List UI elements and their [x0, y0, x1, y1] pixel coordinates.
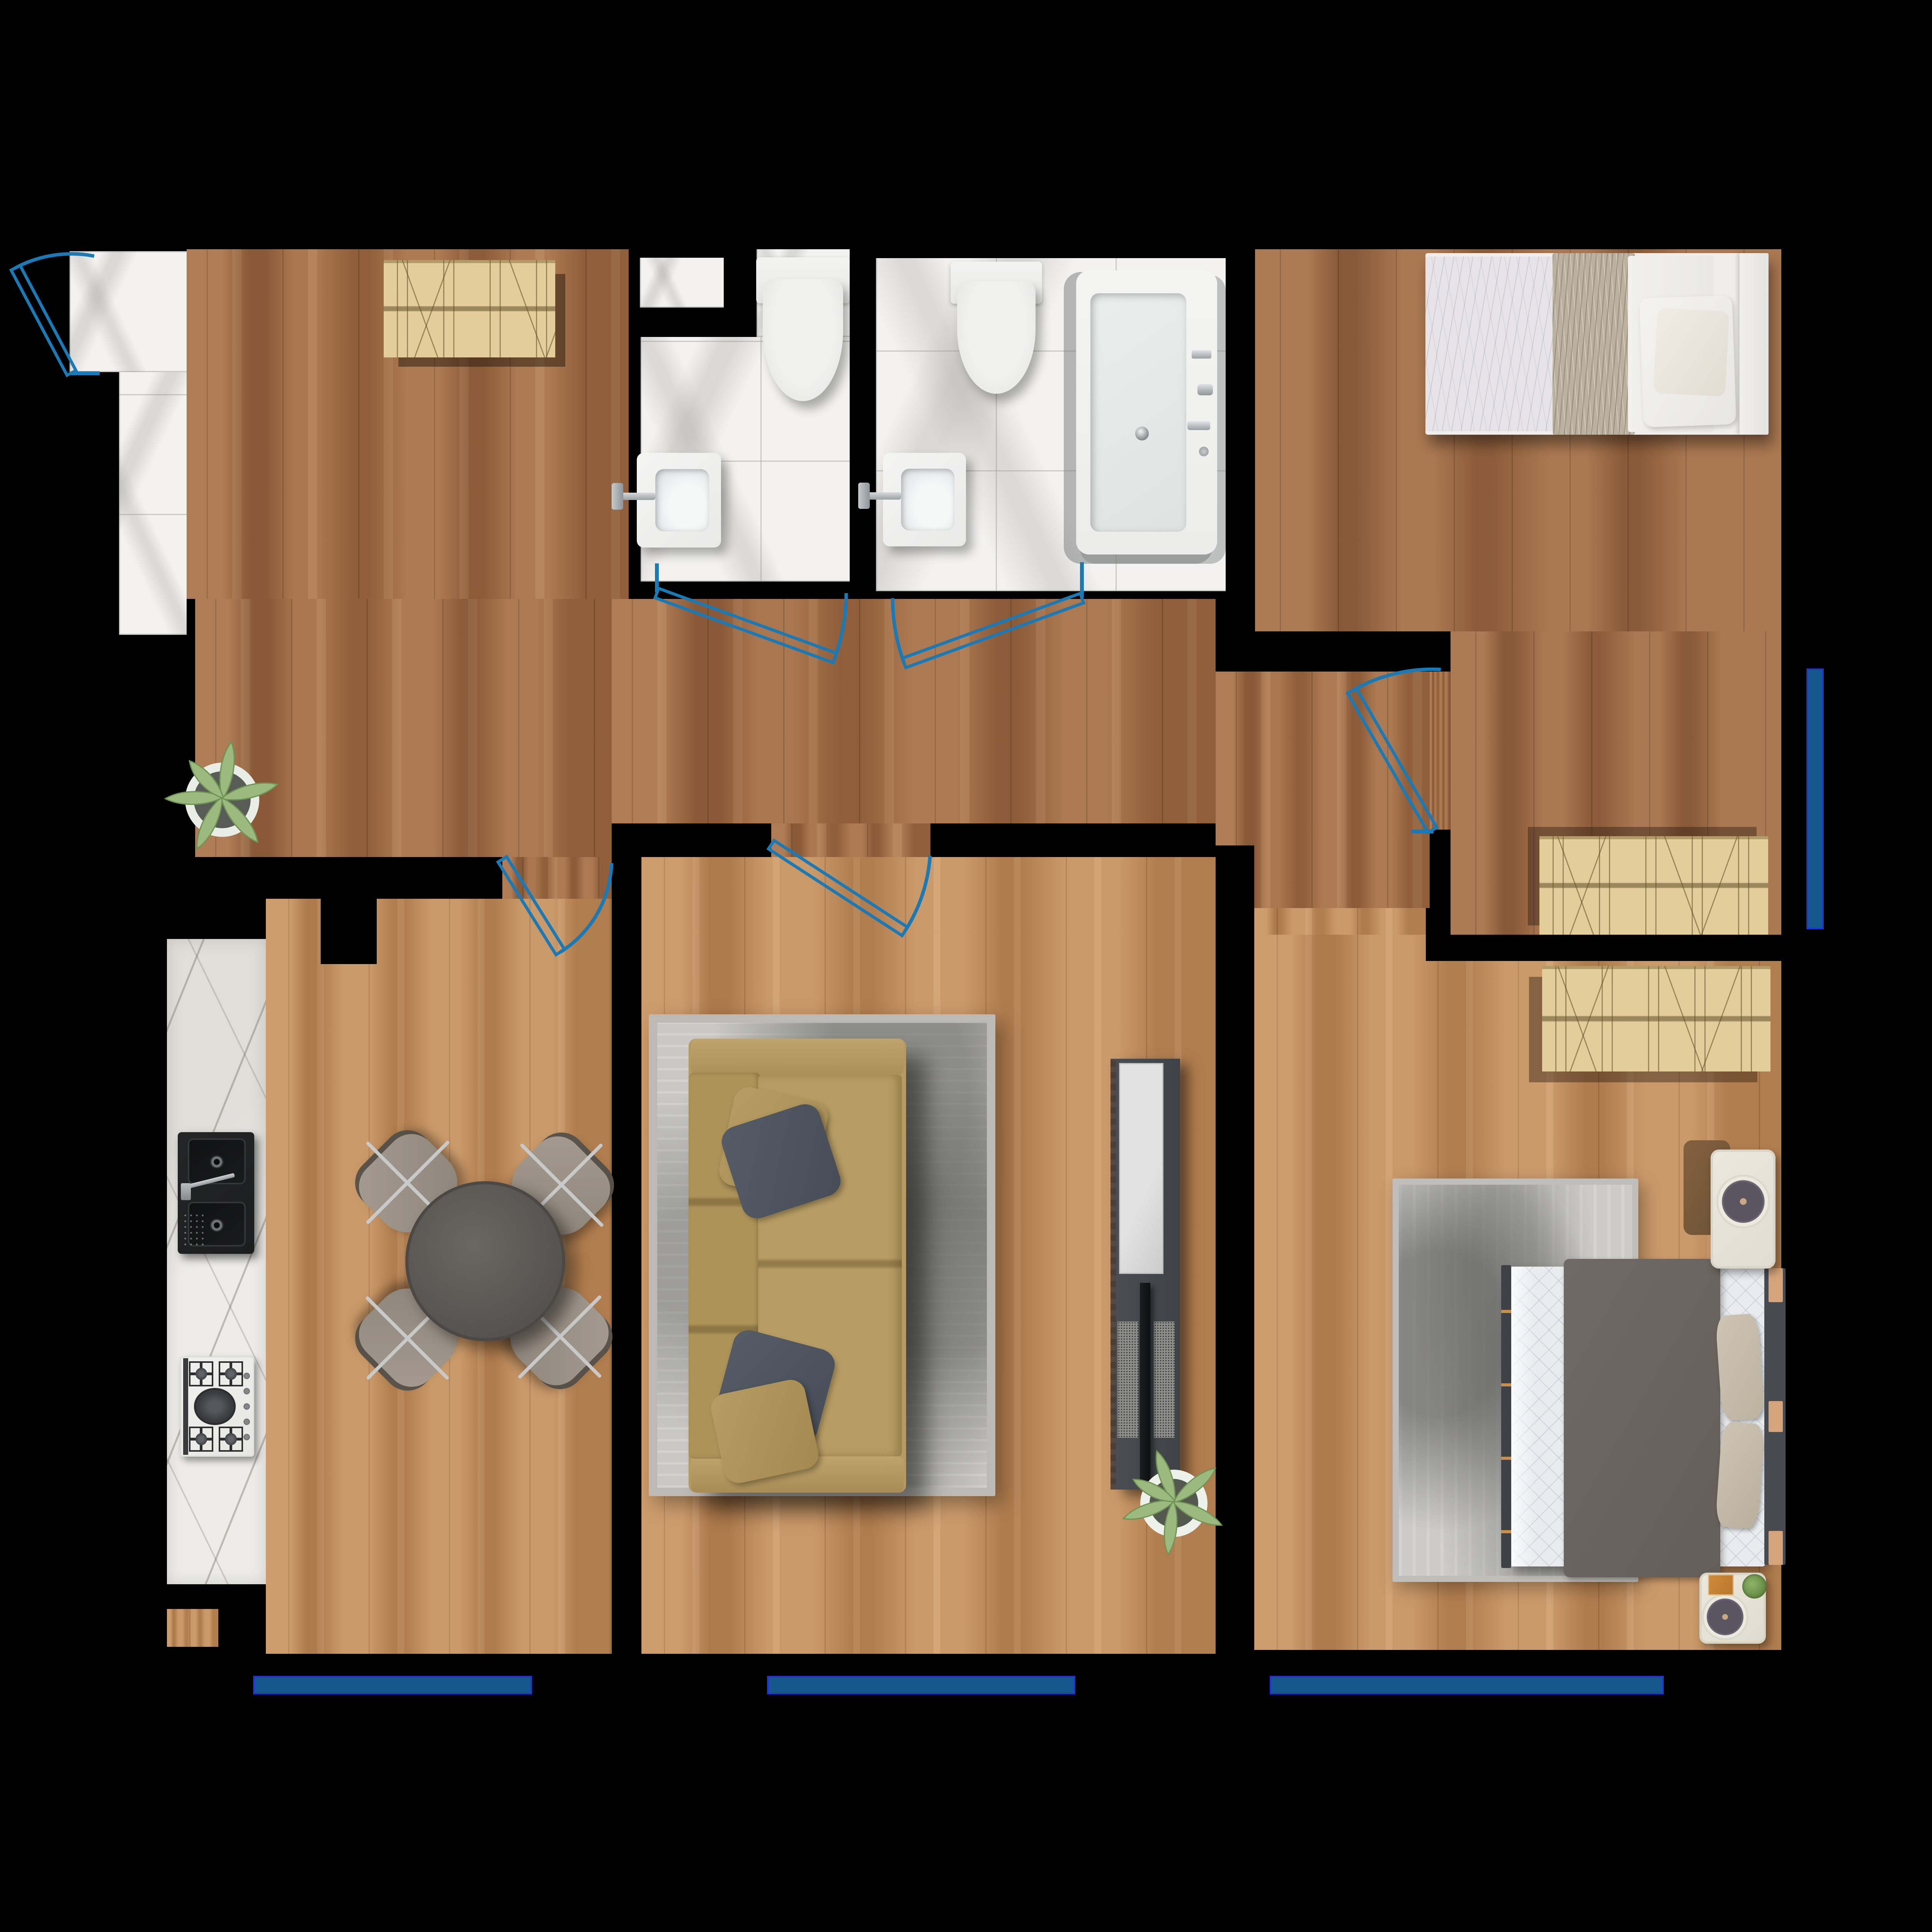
drain-icon	[210, 1155, 224, 1169]
bed-bedroom2	[1425, 253, 1769, 435]
kitchen-door-threshold	[502, 857, 612, 899]
tv-unit	[1111, 1059, 1180, 1490]
corridor-center-floor	[612, 599, 1216, 823]
tub-basin	[1090, 293, 1186, 532]
plant-hall	[160, 736, 284, 860]
master-pillow	[1715, 1313, 1765, 1421]
drain-icon	[210, 1219, 224, 1232]
toilet-bowl	[763, 279, 843, 401]
sofa-pillow-tan	[708, 1377, 821, 1486]
entry-tile-narrow	[119, 372, 187, 635]
bed-master	[1501, 1262, 1786, 1571]
bed-headboard	[1740, 253, 1769, 435]
master-sheet-fold	[1510, 1267, 1535, 1566]
record-player-icon	[1718, 1177, 1768, 1226]
kitchen-sink	[178, 1132, 254, 1254]
dining-table	[405, 1181, 565, 1341]
plant-living	[1116, 1444, 1232, 1560]
tub-overflow-icon	[1199, 447, 1209, 456]
potted-plant-icon	[1116, 1444, 1232, 1560]
window-living	[767, 1676, 1075, 1694]
toilet-bath1	[756, 257, 850, 401]
stove-rail	[183, 1358, 188, 1455]
tub-handle-icon	[1197, 384, 1213, 395]
master-throw-blanket	[1564, 1259, 1720, 1577]
kitchen-counter-marble	[167, 939, 266, 1584]
stove-burner-icon	[219, 1427, 243, 1452]
tv-speaker	[1154, 1321, 1175, 1438]
potted-plant-icon	[160, 736, 284, 860]
sink-basin	[901, 469, 954, 531]
stove-knobs-icon	[242, 1368, 251, 1445]
master-nook-floor	[1254, 908, 1426, 935]
book-icon	[1708, 1574, 1734, 1595]
kitchen-step-wall	[321, 899, 377, 964]
tub-drain-icon	[1135, 427, 1149, 440]
kitchen-step-floor	[167, 1609, 218, 1647]
stove-center-burner-icon	[196, 1390, 233, 1422]
tub-spout-icon	[1192, 350, 1211, 359]
wardrobe-closet	[1539, 836, 1768, 935]
bathtub	[1076, 270, 1217, 554]
bed-pillow-small	[1653, 308, 1730, 396]
master-wardrobe-wall	[1426, 935, 1781, 961]
headboard-accent	[1769, 1401, 1783, 1432]
window-kitchen	[253, 1676, 532, 1694]
window-master	[1270, 1676, 1664, 1694]
kitchen-stove	[180, 1356, 254, 1457]
floor-plan-canvas	[0, 0, 1932, 1932]
window-east	[1806, 668, 1824, 929]
faucet-base-icon	[181, 1183, 191, 1200]
headboard-accent	[1769, 1531, 1783, 1565]
faucet-handle-icon	[612, 483, 624, 510]
toilet-bowl	[957, 281, 1036, 394]
master-door-gap-floor	[1430, 672, 1451, 830]
master-pillow	[1715, 1421, 1765, 1529]
dining-set	[390, 1166, 580, 1356]
door-entry-leaf	[11, 265, 76, 375]
wardrobe-hall	[384, 260, 555, 357]
sink-bath1	[637, 453, 721, 548]
entry-tile-wide	[70, 251, 187, 372]
sofa-living	[689, 1039, 906, 1493]
record-player-icon	[1704, 1595, 1747, 1638]
tv-speaker	[1117, 1321, 1138, 1438]
tub-mixer-icon	[1187, 421, 1210, 430]
stove-burner-icon	[219, 1361, 243, 1386]
faucet-handle-icon	[858, 483, 870, 509]
wardrobe-master	[1542, 966, 1770, 1071]
corridor-master-wall	[1216, 845, 1254, 908]
nightstand-south	[1699, 1570, 1771, 1645]
sofa-armrest	[691, 1039, 904, 1075]
stove-burner-icon	[189, 1361, 213, 1386]
bath1-niche-tile	[640, 258, 724, 308]
headboard-accent	[1769, 1268, 1783, 1302]
drainboard-dots	[182, 1213, 204, 1247]
living-door-threshold	[771, 823, 930, 857]
mini-plant-icon	[1742, 1574, 1767, 1599]
toilet-bath2	[951, 262, 1042, 394]
tv-screen	[1119, 1063, 1163, 1274]
master-footboard	[1501, 1265, 1511, 1568]
sink-basin	[655, 469, 709, 532]
bed-throw-blanket	[1553, 253, 1635, 435]
stove-burner-icon	[189, 1427, 213, 1452]
sink-bath2	[883, 453, 966, 546]
nightstand-north	[1700, 1136, 1776, 1271]
